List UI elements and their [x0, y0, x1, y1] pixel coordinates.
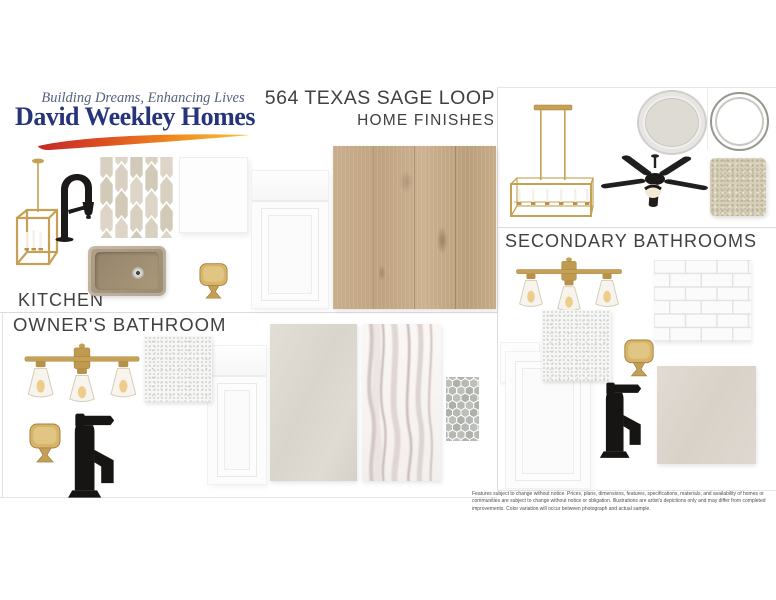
- brass-3-light-vanity-fixture: [504, 255, 634, 313]
- white-marble-look-tile: [362, 324, 441, 481]
- white-subway-tile: [654, 260, 751, 342]
- paint-images-divider: [707, 88, 708, 150]
- matte-black-pulldown-kitchen-faucet: [54, 160, 98, 242]
- cabinet-drawer-front: [252, 171, 328, 202]
- brass-cabinet-knob: [622, 337, 656, 377]
- white-speckled-quartz-sample: [542, 310, 611, 381]
- black-ceiling-fan-with-light: [600, 152, 710, 210]
- white-square-tile: [179, 157, 248, 233]
- brass-3-light-vanity-fixture: [16, 341, 148, 404]
- plan-subtitle: HOME FINISHES: [262, 112, 495, 129]
- beige-picket-mosaic-tile: [99, 157, 174, 238]
- plan-address: 564 TEXAS SAGE LOOP: [262, 88, 495, 109]
- white-shaker-cabinet-door: [208, 346, 266, 484]
- cabinet-drawer-front: [208, 346, 266, 377]
- right-mid-divider: [497, 227, 776, 228]
- left-edge-divider: [2, 313, 3, 497]
- matte-black-bathroom-faucet: [598, 376, 650, 458]
- column-divider: [497, 88, 498, 490]
- title-block: 564 TEXAS SAGE LOOP HOME FINISHES: [262, 88, 495, 129]
- finishes-board: Building Dreams, Enhancing Lives David W…: [0, 0, 776, 600]
- disclaimer-text: Features subject to change without notic…: [472, 491, 769, 513]
- cabinet-door-panel: [217, 383, 257, 477]
- right-top-divider: [497, 87, 776, 88]
- matte-black-bathroom-faucet: [66, 406, 124, 498]
- beige-floor-tile: [657, 366, 756, 464]
- brass-cabinet-knob: [196, 261, 231, 299]
- light-oak-wood-flooring: [333, 146, 496, 309]
- white-shaker-cabinet-door: [252, 171, 328, 308]
- section-label-owners-bathroom: OWNER'S BATHROOM: [13, 316, 226, 335]
- bronze-single-bowl-kitchen-sink: [88, 246, 166, 296]
- brand-swoosh-icon: [36, 132, 252, 152]
- gray-hexagon-mosaic-tile: [446, 377, 479, 441]
- gold-lantern-pendant-light: [12, 156, 60, 268]
- kitchen-bathroom-divider: [0, 312, 497, 313]
- paint-can-lid-light-gray: [637, 90, 707, 155]
- sink-basin: [95, 252, 159, 290]
- cabinet-door-panel: [261, 208, 319, 301]
- sink-drain: [132, 267, 144, 279]
- brass-linear-chandelier: [506, 102, 600, 220]
- white-speckled-quartz-sample: [144, 336, 212, 402]
- beige-large-format-tile: [270, 324, 357, 481]
- cream-carpet-sample: [710, 158, 766, 216]
- paint-can-rim: [710, 92, 769, 151]
- brand-name: David Weekley Homes: [8, 104, 262, 130]
- paint-color-swatch: [645, 98, 699, 147]
- section-label-secondary-bathrooms: SECONDARY BATHROOMS: [505, 232, 757, 250]
- brass-cabinet-knob: [27, 421, 63, 463]
